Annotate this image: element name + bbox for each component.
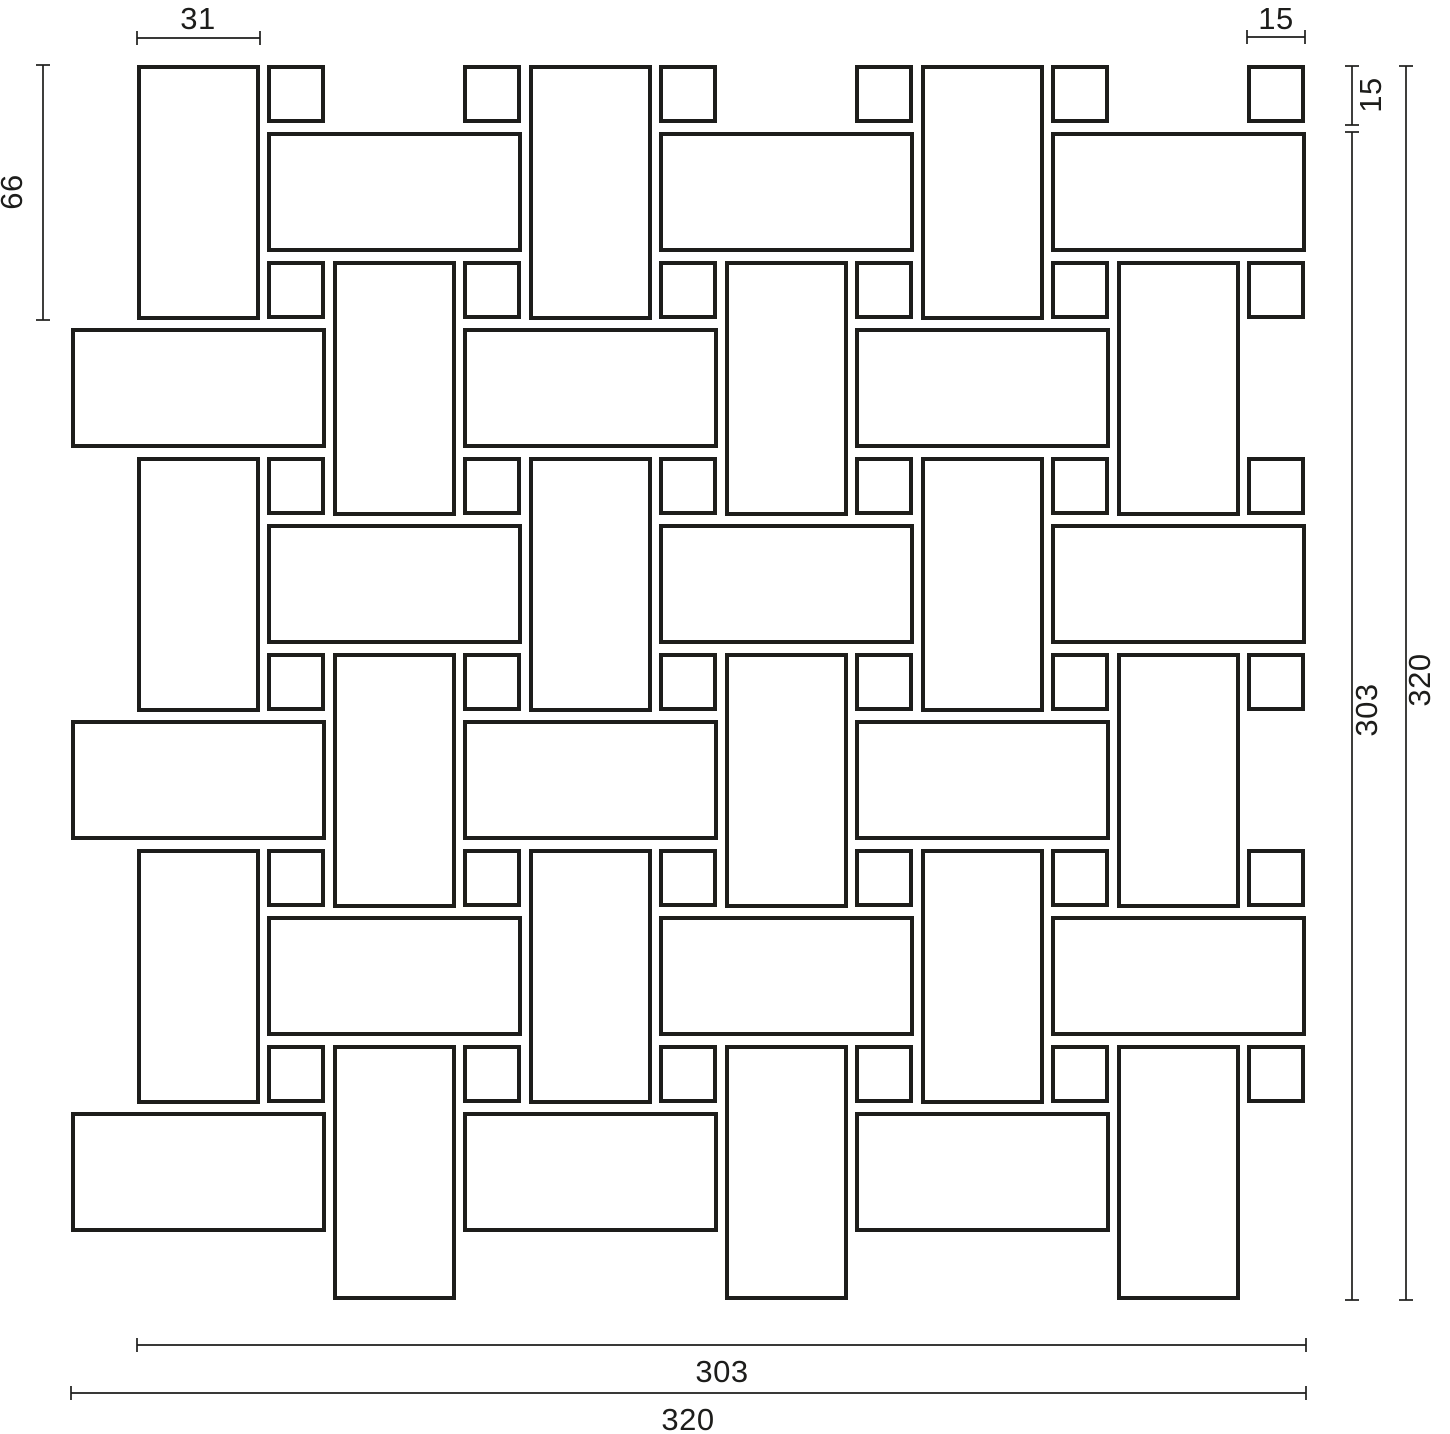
tile-vertical bbox=[923, 851, 1042, 1102]
tile-dot bbox=[661, 459, 715, 513]
dim-label-sheet-bottom: 320 bbox=[661, 1402, 714, 1434]
tile-dot bbox=[1053, 655, 1107, 709]
tile-vertical bbox=[1119, 263, 1238, 514]
tile-dot bbox=[1053, 1047, 1107, 1101]
tile-vertical bbox=[727, 263, 846, 514]
tile-dot bbox=[465, 1047, 519, 1101]
tile-dot bbox=[1249, 851, 1303, 905]
tile-vertical bbox=[923, 67, 1042, 318]
mosaic-tiles-layer bbox=[73, 67, 1304, 1298]
tile-horizontal bbox=[661, 918, 912, 1034]
tile-dot bbox=[465, 655, 519, 709]
tile-vertical bbox=[139, 459, 258, 710]
drawing-stage: 31 15 66 15 303 320 303 320 bbox=[0, 0, 1450, 1434]
tile-horizontal bbox=[73, 722, 324, 838]
tile-vertical bbox=[727, 1047, 846, 1298]
tile-horizontal bbox=[857, 722, 1108, 838]
tile-dot bbox=[269, 655, 323, 709]
tile-dot bbox=[857, 459, 911, 513]
tile-dot bbox=[1053, 67, 1107, 121]
tile-vertical bbox=[139, 67, 258, 318]
tile-dot bbox=[1053, 263, 1107, 317]
tile-dot bbox=[661, 263, 715, 317]
tile-dot bbox=[1053, 851, 1107, 905]
tile-dot bbox=[1249, 1047, 1303, 1101]
tile-vertical bbox=[531, 459, 650, 710]
tile-vertical bbox=[531, 851, 650, 1102]
tile-dot bbox=[857, 263, 911, 317]
tile-horizontal bbox=[465, 722, 716, 838]
dim-label-dot-size: 15 bbox=[1258, 1, 1293, 36]
tile-dot bbox=[857, 851, 911, 905]
tile-dot bbox=[269, 851, 323, 905]
tile-horizontal bbox=[269, 918, 520, 1034]
tile-vertical bbox=[1119, 1047, 1238, 1298]
dim-label-module-bottom: 303 bbox=[695, 1354, 748, 1389]
dim-label-sheet-right: 320 bbox=[1402, 653, 1437, 706]
tile-dot bbox=[661, 67, 715, 121]
tile-dot bbox=[661, 1047, 715, 1101]
tile-dot bbox=[269, 263, 323, 317]
tile-vertical bbox=[923, 459, 1042, 710]
tile-dot bbox=[857, 1047, 911, 1101]
tile-horizontal bbox=[73, 1114, 324, 1230]
tile-horizontal bbox=[465, 1114, 716, 1230]
tile-vertical bbox=[727, 655, 846, 906]
tile-horizontal bbox=[857, 330, 1108, 446]
tile-horizontal bbox=[1053, 134, 1304, 250]
tile-vertical bbox=[335, 1047, 454, 1298]
pattern-drawing: 31 15 66 15 303 320 303 320 bbox=[0, 0, 1450, 1434]
dim-label-module-right: 303 bbox=[1349, 683, 1384, 736]
tile-horizontal bbox=[269, 526, 520, 642]
tile-dot bbox=[465, 263, 519, 317]
tile-horizontal bbox=[1053, 918, 1304, 1034]
tile-dot bbox=[465, 851, 519, 905]
tile-vertical bbox=[335, 263, 454, 514]
tile-dot bbox=[465, 459, 519, 513]
tile-horizontal bbox=[73, 330, 324, 446]
tile-horizontal bbox=[465, 330, 716, 446]
tile-dot bbox=[857, 655, 911, 709]
dim-label-tile-length: 66 bbox=[0, 174, 29, 209]
tile-dot bbox=[661, 655, 715, 709]
tile-dot bbox=[269, 1047, 323, 1101]
tile-dot bbox=[269, 67, 323, 121]
tile-vertical bbox=[139, 851, 258, 1102]
tile-vertical bbox=[1119, 655, 1238, 906]
tile-dot bbox=[465, 67, 519, 121]
tile-dot bbox=[1249, 67, 1303, 121]
tile-horizontal bbox=[857, 1114, 1108, 1230]
tile-dot bbox=[1249, 655, 1303, 709]
tile-dot bbox=[661, 851, 715, 905]
tile-horizontal bbox=[661, 134, 912, 250]
tile-dot bbox=[1249, 263, 1303, 317]
dim-label-dot-offset: 15 bbox=[1353, 77, 1388, 112]
tile-vertical bbox=[335, 655, 454, 906]
tile-horizontal bbox=[269, 134, 520, 250]
tile-dot bbox=[1249, 459, 1303, 513]
tile-dot bbox=[1053, 459, 1107, 513]
tile-vertical bbox=[531, 67, 650, 318]
tile-horizontal bbox=[661, 526, 912, 642]
tile-dot bbox=[857, 67, 911, 121]
tile-horizontal bbox=[1053, 526, 1304, 642]
tile-dot bbox=[269, 459, 323, 513]
dim-label-tile-width: 31 bbox=[180, 1, 215, 36]
